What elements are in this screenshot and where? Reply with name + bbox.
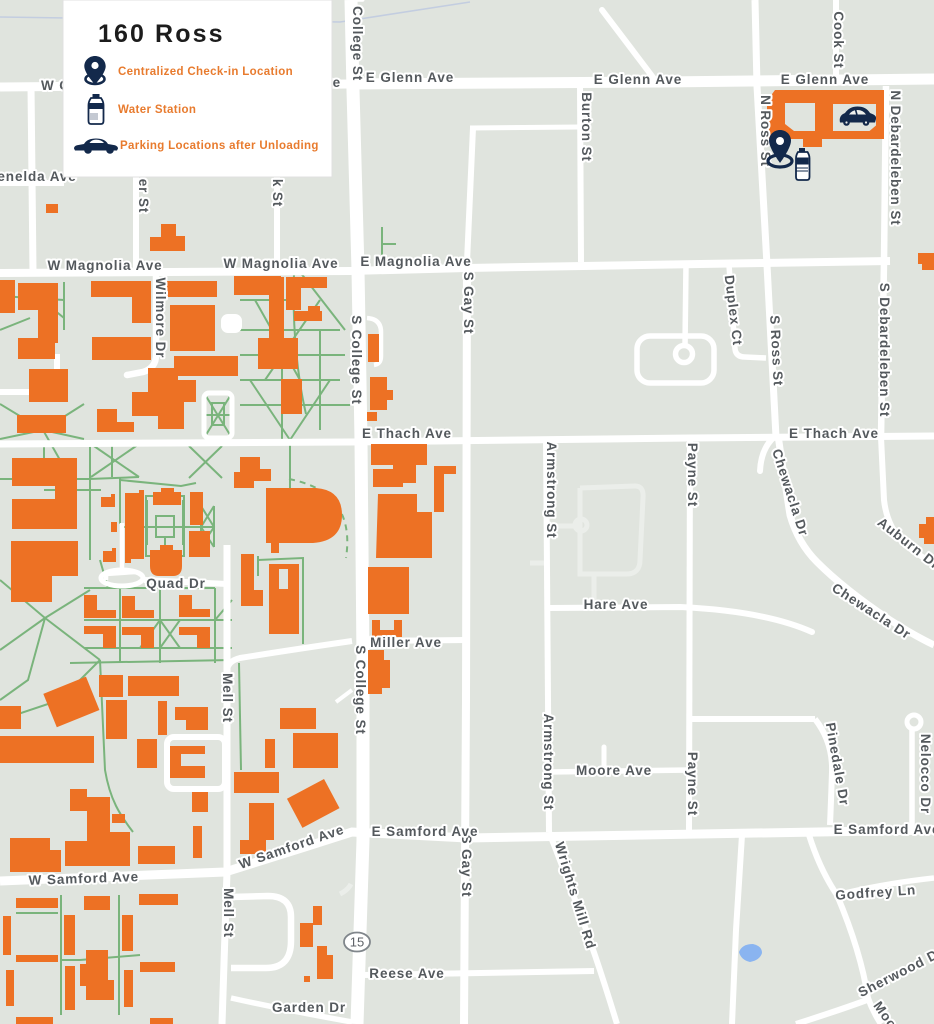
svg-text:E Thach Ave: E Thach Ave <box>789 426 879 441</box>
svg-text:Mell St: Mell St <box>221 888 236 938</box>
svg-text:W Magnolia Ave: W Magnolia Ave <box>47 258 162 273</box>
svg-text:S College St: S College St <box>353 645 368 735</box>
svg-text:Armstrong St: Armstrong St <box>541 713 556 810</box>
svg-text:Nelocco Dr: Nelocco Dr <box>918 734 933 814</box>
svg-text:Payne St: Payne St <box>685 752 700 816</box>
svg-text:Miller Ave: Miller Ave <box>370 635 442 650</box>
svg-text:N Debardeleben St: N Debardeleben St <box>888 90 903 225</box>
svg-text:160 Ross: 160 Ross <box>98 20 225 48</box>
svg-text:S Gay St: S Gay St <box>459 835 474 898</box>
svg-text:Burton St: Burton St <box>579 92 594 162</box>
svg-text:E Glenn Ave: E Glenn Ave <box>366 70 454 85</box>
svg-text:Centralized Check-in Location: Centralized Check-in Location <box>118 66 293 78</box>
svg-text:Water Station: Water Station <box>118 104 196 116</box>
svg-text:S Gay St: S Gay St <box>461 272 476 335</box>
svg-text:Cook St: Cook St <box>831 11 846 68</box>
svg-text:Hare Ave: Hare Ave <box>584 597 649 612</box>
svg-text:15: 15 <box>350 935 364 950</box>
svg-text:Quad Dr: Quad Dr <box>146 576 206 591</box>
svg-text:E Samford Ave: E Samford Ave <box>372 824 479 839</box>
svg-text:k St: k St <box>270 179 285 207</box>
svg-text:E Samford Ave: E Samford Ave <box>834 822 934 837</box>
svg-text:E Glenn Ave: E Glenn Ave <box>594 72 682 87</box>
svg-text:Moore Ave: Moore Ave <box>576 763 652 778</box>
svg-text:Wilmore Dr: Wilmore Dr <box>153 278 168 359</box>
svg-text:Armstrong St: Armstrong St <box>544 441 559 538</box>
svg-text:S Debardeleben St: S Debardeleben St <box>877 283 892 418</box>
svg-text:Garden Dr: Garden Dr <box>272 1000 346 1015</box>
svg-text:E Thach Ave: E Thach Ave <box>362 426 452 441</box>
svg-text:E Magnolia Ave: E Magnolia Ave <box>360 254 471 269</box>
svg-text:Reese Ave: Reese Ave <box>369 966 444 981</box>
svg-text:Parking Locations after Unload: Parking Locations after Unloading <box>120 140 319 152</box>
svg-text:S College St: S College St <box>349 315 364 405</box>
svg-text:E Glenn Ave: E Glenn Ave <box>781 72 869 87</box>
svg-text:N College St: N College St <box>350 0 365 81</box>
svg-text:Payne St: Payne St <box>685 443 700 507</box>
svg-text:er St: er St <box>136 179 151 214</box>
svg-text:Mell St: Mell St <box>220 673 235 723</box>
svg-text:W Magnolia Ave: W Magnolia Ave <box>223 256 338 271</box>
